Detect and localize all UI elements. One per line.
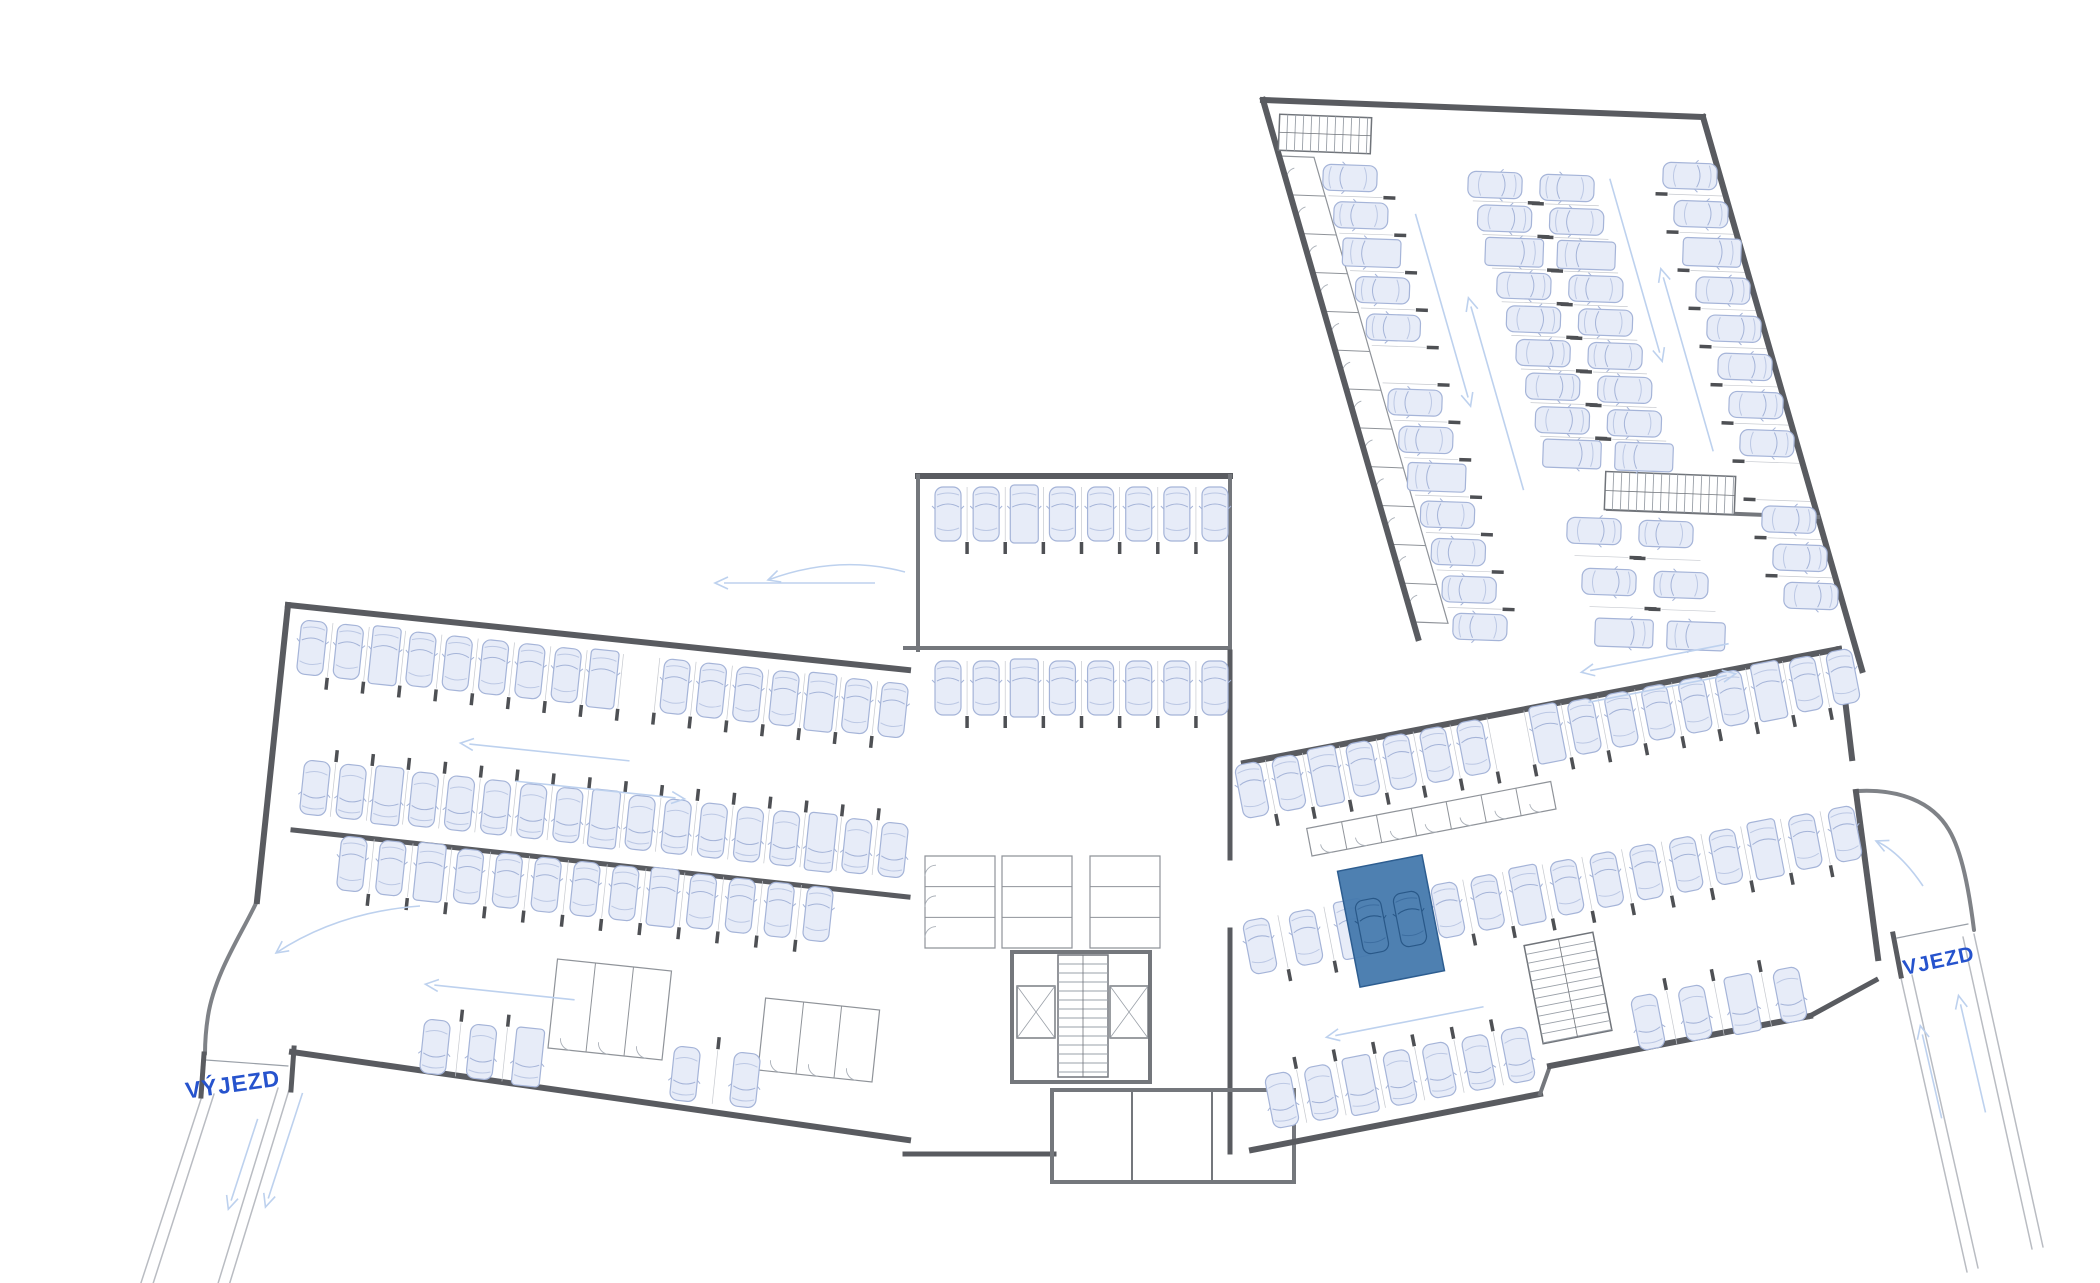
stall-end-wall xyxy=(480,766,481,778)
stall-end-wall xyxy=(1288,969,1290,981)
parking-floor-plan: VÝJEZDVJEZD xyxy=(0,0,2100,1283)
car xyxy=(1743,817,1787,880)
car xyxy=(441,775,478,832)
arrow-shaft xyxy=(1471,307,1524,491)
car-body xyxy=(516,783,548,839)
car-body xyxy=(802,886,834,942)
car-body xyxy=(973,661,999,715)
car-body xyxy=(419,1019,451,1075)
road-gate xyxy=(1897,924,1968,938)
car xyxy=(760,881,797,938)
stall-divider xyxy=(1482,234,1536,236)
stall-end-wall xyxy=(625,781,626,793)
stall-end-wall xyxy=(1387,793,1389,805)
car xyxy=(1199,661,1231,715)
stall-end-wall xyxy=(718,1037,719,1049)
car xyxy=(1728,388,1783,422)
car xyxy=(1239,916,1281,975)
car-body xyxy=(1345,740,1381,798)
car xyxy=(1586,850,1628,909)
car-body xyxy=(466,1024,498,1080)
car xyxy=(1496,269,1551,303)
car-body xyxy=(768,670,800,726)
arrow-shaft xyxy=(1335,1007,1483,1036)
car-body xyxy=(841,818,873,874)
stall-end-wall xyxy=(1756,722,1758,734)
stall-end-wall xyxy=(367,894,368,906)
car xyxy=(765,670,802,727)
stall-end-wall xyxy=(756,936,757,948)
cell-block-outline xyxy=(925,856,995,948)
central-cellars-mid1 xyxy=(1002,856,1072,948)
stall-divider xyxy=(1757,500,1811,502)
stall-end-wall xyxy=(445,902,446,914)
car-body xyxy=(733,806,765,862)
car xyxy=(1525,370,1580,404)
cell-block-outline xyxy=(548,959,672,1060)
car-body xyxy=(660,799,692,855)
stall-divider xyxy=(796,885,802,939)
car xyxy=(1431,535,1486,569)
car xyxy=(508,1026,548,1087)
car-body xyxy=(1708,828,1744,886)
car-body xyxy=(550,647,582,703)
car-body xyxy=(1508,864,1547,926)
car xyxy=(683,873,720,930)
stall-divider xyxy=(455,1023,461,1077)
arrow-head xyxy=(1655,267,1670,283)
car xyxy=(584,788,624,849)
car xyxy=(1761,503,1816,537)
car xyxy=(477,779,514,836)
stall-divider xyxy=(763,670,769,724)
car-body xyxy=(441,635,473,691)
stall-divider xyxy=(872,681,878,735)
stall-divider xyxy=(369,839,375,893)
car-body xyxy=(1567,697,1603,755)
stall-end-wall xyxy=(1473,934,1475,946)
stall-end-wall xyxy=(1632,903,1634,915)
car xyxy=(838,818,875,875)
car xyxy=(463,1023,500,1080)
arrow-shaft xyxy=(1590,644,1728,671)
stall-end-wall xyxy=(653,713,654,725)
stall-end-wall xyxy=(1664,978,1666,990)
stall-divider xyxy=(1393,420,1447,422)
stall-divider xyxy=(1328,196,1382,198)
cell-block-outline xyxy=(1307,782,1556,857)
hall-top-stair xyxy=(1278,114,1371,154)
car xyxy=(1505,863,1549,926)
car xyxy=(932,661,964,715)
car-body xyxy=(669,1046,701,1102)
road-edge xyxy=(1901,978,1967,1272)
car xyxy=(1557,237,1616,273)
car xyxy=(1627,992,1669,1051)
central-row-mid xyxy=(932,659,1231,728)
arrow-shaft xyxy=(469,744,629,761)
car-body xyxy=(1088,661,1114,715)
stall-end-wall xyxy=(1751,880,1753,892)
stall-divider xyxy=(446,848,452,902)
car xyxy=(1539,171,1594,205)
stall-divider xyxy=(1339,233,1393,235)
stall-end-wall xyxy=(444,762,445,774)
car xyxy=(416,1018,453,1075)
stall-divider xyxy=(1531,403,1585,405)
car xyxy=(694,802,731,859)
stall-end-wall xyxy=(544,701,545,713)
stall-divider xyxy=(407,843,413,897)
stall-divider xyxy=(1593,372,1647,374)
car xyxy=(1268,753,1310,812)
car xyxy=(1542,436,1601,472)
car xyxy=(766,810,803,867)
wall xyxy=(1893,934,1901,976)
arrow-head xyxy=(1580,664,1595,678)
car-body xyxy=(1668,835,1704,893)
stall-divider xyxy=(1714,982,1724,1035)
stall-end-wall xyxy=(1373,1042,1375,1054)
stall-end-wall xyxy=(589,777,590,789)
stall-end-wall xyxy=(561,915,562,927)
car xyxy=(1046,661,1078,715)
car-body xyxy=(1723,973,1762,1035)
car xyxy=(1231,760,1273,819)
arrow-head xyxy=(223,1195,238,1211)
car xyxy=(410,842,450,903)
car xyxy=(1418,1040,1460,1099)
car-body xyxy=(1264,1071,1300,1129)
car xyxy=(1407,459,1466,495)
right-wing-stair xyxy=(1524,932,1612,1044)
right-row-bottom-b xyxy=(1627,960,1811,1051)
car-body xyxy=(1589,851,1625,909)
car xyxy=(372,840,409,897)
stall-divider xyxy=(509,642,515,696)
stall-divider xyxy=(1540,436,1594,438)
car xyxy=(549,787,586,844)
car-body xyxy=(480,779,512,835)
stall-end-wall xyxy=(1412,1034,1414,1046)
stall-divider xyxy=(679,873,685,927)
stall-end-wall xyxy=(794,940,795,952)
car-body xyxy=(1461,1034,1497,1092)
car-body xyxy=(1788,655,1824,713)
stall-divider xyxy=(1724,385,1778,387)
car xyxy=(799,885,836,942)
central-row-top xyxy=(932,485,1231,554)
car-body xyxy=(453,848,485,904)
arrow-head xyxy=(1914,1024,1929,1039)
stall-divider xyxy=(1779,576,1833,578)
stall-divider xyxy=(1511,335,1565,337)
right-row-bottom-a xyxy=(1261,1019,1539,1129)
stall-divider xyxy=(764,810,770,864)
stall-end-wall xyxy=(408,758,409,770)
car xyxy=(643,867,683,928)
stall-end-wall xyxy=(639,923,640,935)
car xyxy=(1085,487,1117,541)
curved-arrow-shaft xyxy=(768,565,905,580)
car xyxy=(970,487,1002,541)
car xyxy=(874,821,911,878)
cell-block-outline xyxy=(1002,856,1072,948)
car xyxy=(1261,1070,1303,1129)
car-body xyxy=(333,624,365,680)
car xyxy=(1304,744,1348,807)
wall xyxy=(291,1048,294,1090)
car-body xyxy=(1164,661,1190,715)
stall-end-wall xyxy=(508,1015,509,1027)
stall-end-wall xyxy=(878,808,879,820)
right-wing-cellars xyxy=(1307,782,1556,857)
stall-end-wall xyxy=(842,804,843,816)
car xyxy=(1452,610,1507,644)
stall-end-wall xyxy=(1276,814,1278,826)
arrow-shaft xyxy=(231,1119,258,1201)
stall-end-wall xyxy=(1791,873,1793,885)
car-body xyxy=(1746,818,1785,880)
car xyxy=(1785,655,1827,714)
car xyxy=(1662,159,1717,193)
aisle-direction-arrow xyxy=(223,1117,264,1211)
stall-end-wall xyxy=(523,911,524,923)
car xyxy=(1338,1053,1382,1116)
stall-end-wall xyxy=(435,689,436,701)
car xyxy=(1516,336,1571,370)
highlight-rect[interactable] xyxy=(1338,855,1445,987)
stall-divider xyxy=(1612,439,1666,441)
stall-divider xyxy=(1691,271,1745,273)
stall-divider xyxy=(1554,237,1608,239)
stall-end-wall xyxy=(1350,800,1352,812)
car-body xyxy=(1677,676,1713,734)
stall-divider xyxy=(728,806,734,860)
left-row-lower xyxy=(333,835,836,951)
stall-divider xyxy=(1361,308,1415,310)
car xyxy=(1720,972,1764,1035)
car-body xyxy=(1202,487,1228,541)
road-edge xyxy=(151,1094,214,1283)
car xyxy=(489,852,526,909)
stall-divider xyxy=(1502,302,1556,304)
stall-divider xyxy=(872,821,878,875)
curved-arrow-shaft xyxy=(1876,841,1923,886)
car-body xyxy=(686,873,718,929)
car-body xyxy=(1419,726,1455,784)
stall-divider xyxy=(1735,423,1789,425)
stall-end-wall xyxy=(553,773,554,785)
stall-end-wall xyxy=(406,898,407,910)
stall-divider xyxy=(1324,907,1334,960)
car xyxy=(1007,659,1041,717)
car xyxy=(1614,439,1673,475)
car xyxy=(656,658,693,715)
stall-divider xyxy=(757,881,763,935)
car xyxy=(332,763,369,820)
stall-divider xyxy=(545,646,551,700)
stall-end-wall xyxy=(1460,779,1462,791)
highlight-rect-group xyxy=(1338,855,1445,987)
car xyxy=(1379,732,1421,791)
car xyxy=(1682,234,1741,270)
stall-end-wall xyxy=(1451,1027,1453,1039)
car xyxy=(1772,541,1827,575)
stall-divider xyxy=(524,856,530,910)
car-body xyxy=(1010,659,1038,717)
car xyxy=(1525,702,1569,765)
car xyxy=(566,860,603,917)
car-body xyxy=(1630,993,1666,1051)
car xyxy=(1199,487,1231,541)
arrow-head xyxy=(1953,994,1968,1009)
stall-divider xyxy=(1350,271,1404,273)
car xyxy=(1046,487,1078,541)
car-body xyxy=(336,836,368,892)
car-body xyxy=(296,620,328,676)
elevator xyxy=(1017,986,1055,1038)
car xyxy=(726,1051,763,1108)
car xyxy=(1467,168,1522,202)
stall-end-wall xyxy=(1830,865,1832,877)
car xyxy=(621,794,658,851)
car xyxy=(1285,908,1327,967)
stall-divider xyxy=(1669,194,1723,196)
stall-divider xyxy=(563,860,569,914)
car xyxy=(1747,659,1791,722)
car xyxy=(1568,272,1623,306)
stall-divider xyxy=(1761,973,1771,1026)
car xyxy=(801,812,841,873)
car xyxy=(527,856,564,913)
stall-end-wall xyxy=(1424,786,1426,798)
car-body xyxy=(299,760,331,816)
stall-end-wall xyxy=(517,770,518,782)
stall-divider xyxy=(1448,607,1502,609)
car-body xyxy=(335,764,367,820)
car xyxy=(800,672,840,733)
wall xyxy=(1540,1066,1550,1094)
car xyxy=(1342,739,1384,798)
car-body xyxy=(1126,661,1152,715)
stall-end-wall xyxy=(661,785,662,797)
car-body xyxy=(1088,487,1114,541)
aisle-direction-arrow xyxy=(1914,1024,1947,1119)
stall-divider xyxy=(327,623,333,677)
car xyxy=(293,619,330,676)
car xyxy=(1597,373,1652,407)
car-body xyxy=(1242,917,1278,975)
stall-divider xyxy=(1667,991,1677,1044)
stall-end-wall xyxy=(1491,1019,1493,1031)
aisle-direction-arrow xyxy=(460,737,630,767)
stall-divider xyxy=(1603,406,1657,408)
car xyxy=(1549,205,1604,239)
car xyxy=(1638,517,1693,551)
car xyxy=(722,877,759,934)
arrow-head xyxy=(1653,347,1668,363)
car-body xyxy=(405,631,437,687)
stall-end-wall xyxy=(717,931,718,943)
stall-divider xyxy=(718,877,724,931)
stall-divider xyxy=(1372,345,1426,347)
highlighted-parking-space[interactable] xyxy=(1338,855,1445,987)
car xyxy=(1566,514,1621,548)
car-body xyxy=(696,662,728,718)
car xyxy=(1161,661,1193,715)
car xyxy=(1626,842,1668,901)
stall-end-wall xyxy=(1592,911,1594,923)
stall-end-wall xyxy=(1513,926,1515,938)
car-body xyxy=(763,882,795,938)
car xyxy=(475,639,512,696)
car xyxy=(511,643,548,700)
car xyxy=(1085,661,1117,715)
car xyxy=(333,835,370,892)
car xyxy=(1420,498,1475,532)
stall-divider xyxy=(1590,607,1644,609)
car-body xyxy=(1303,1064,1339,1122)
left-row-bottom-b xyxy=(666,1037,763,1108)
car xyxy=(405,771,442,828)
hall-bottom-stair xyxy=(1604,472,1735,515)
car-body xyxy=(1456,719,1492,777)
road-edge xyxy=(1974,934,2043,1247)
left-wing-cellars-a xyxy=(548,959,672,1060)
car-body xyxy=(1714,669,1750,727)
car xyxy=(513,783,550,840)
stall-divider xyxy=(1415,495,1469,497)
stall-end-wall xyxy=(580,705,581,717)
stall-divider xyxy=(640,868,646,922)
car xyxy=(1717,350,1772,384)
car-body xyxy=(1271,754,1307,812)
car xyxy=(874,681,911,738)
stall-end-wall xyxy=(1793,715,1795,727)
stall-divider xyxy=(1383,383,1437,385)
car-body xyxy=(1549,858,1585,916)
stall-end-wall xyxy=(362,682,363,694)
stall-divider xyxy=(502,1028,508,1082)
stall-end-wall xyxy=(1719,729,1721,741)
car xyxy=(1665,835,1707,894)
road-curb xyxy=(1858,791,1974,930)
wall xyxy=(1703,117,1862,670)
entrance-label: VJEZD xyxy=(1901,942,1977,980)
wall xyxy=(1810,980,1876,1016)
car xyxy=(605,865,642,922)
car xyxy=(1673,197,1728,231)
stall-divider xyxy=(1521,369,1575,371)
stall-divider xyxy=(1426,533,1480,535)
left-wing-cellars-b xyxy=(758,998,880,1082)
car xyxy=(1784,812,1826,871)
stall-end-wall xyxy=(1682,736,1684,748)
elevator xyxy=(1110,986,1148,1038)
car xyxy=(296,759,333,816)
stall-divider xyxy=(1662,610,1716,612)
road-edge xyxy=(216,1088,278,1283)
car xyxy=(1123,661,1155,715)
cell-block-outline xyxy=(758,998,880,1082)
car xyxy=(1467,873,1509,932)
curved-arrow-shaft xyxy=(276,906,420,953)
car xyxy=(1497,1025,1539,1084)
stall-divider xyxy=(473,639,479,693)
car-body xyxy=(877,822,909,878)
stall-divider xyxy=(1564,271,1618,273)
